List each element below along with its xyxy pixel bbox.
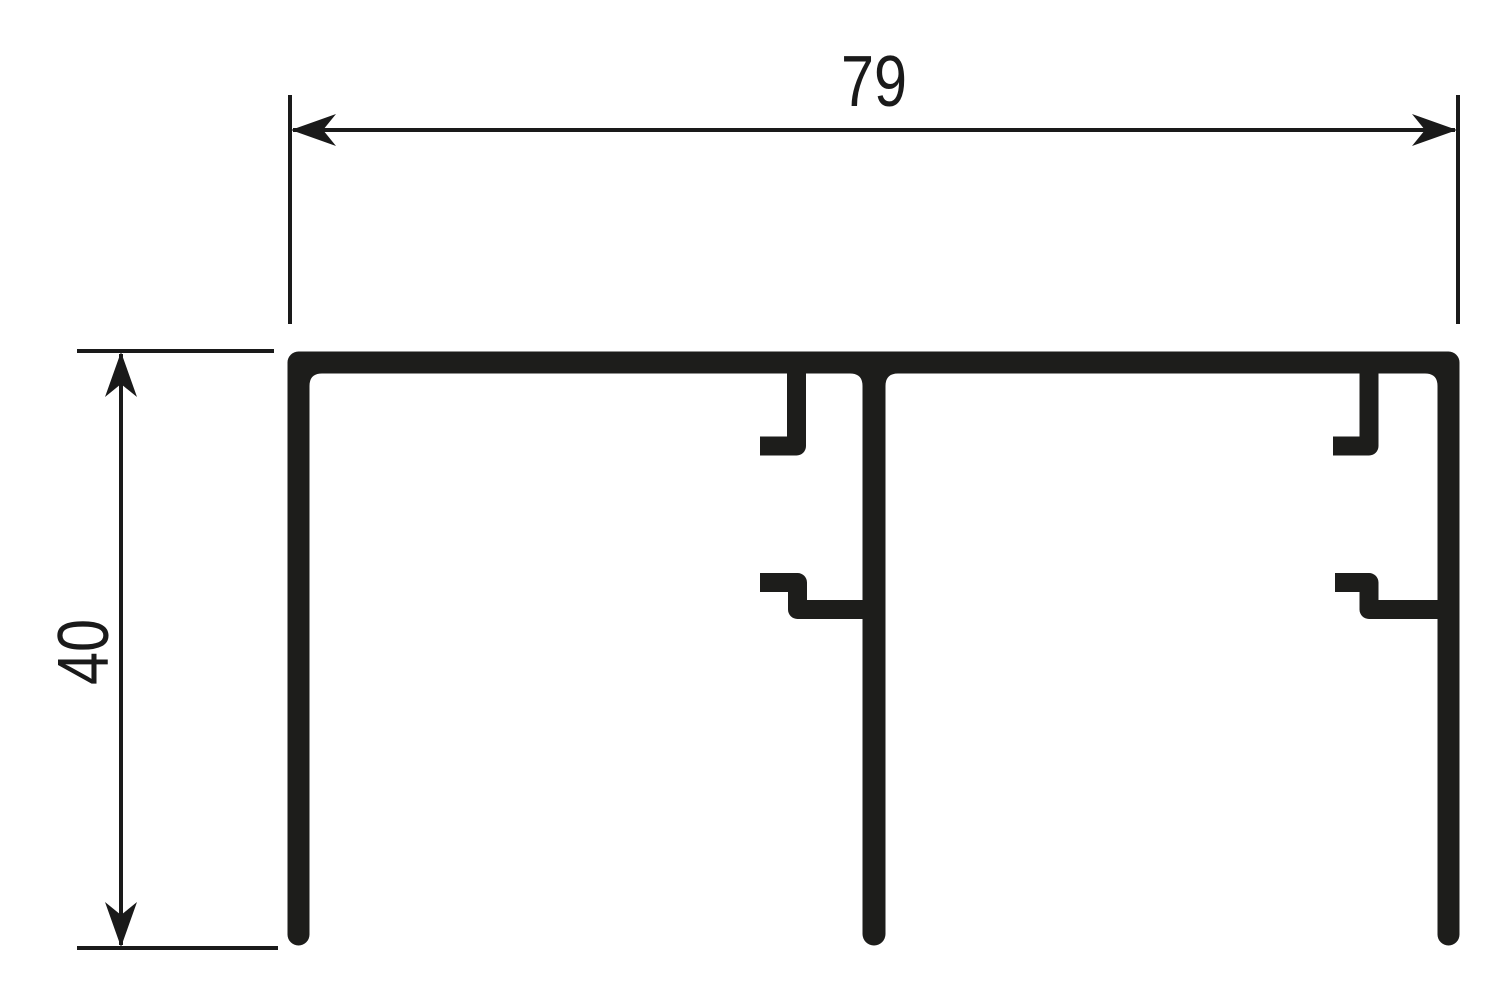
profile-drawing: 79 40: [0, 0, 1500, 1000]
profile-section: [299, 360, 1449, 946]
drawing-canvas: 79 40: [0, 0, 1500, 1000]
width-dimension: 79: [290, 42, 1458, 324]
hook-lower-middle: [760, 583, 872, 610]
profile-middle-leg: [850, 374, 898, 946]
height-dimension-label: 40: [44, 619, 124, 685]
inner-fillet-right: [1425, 374, 1438, 387]
inner-fillet-left: [310, 374, 323, 387]
height-dimension: 40: [44, 351, 278, 948]
width-dimension-label: 79: [841, 42, 907, 122]
hook-lower-right: [1335, 583, 1448, 610]
